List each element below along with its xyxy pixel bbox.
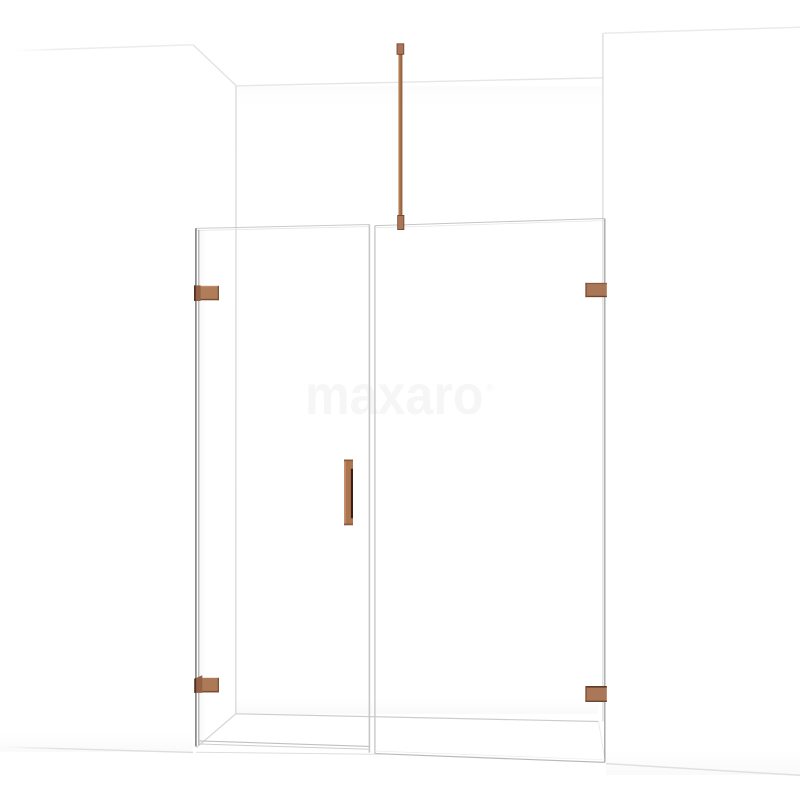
svg-text:®: ® xyxy=(486,383,494,394)
svg-text:maxaro: maxaro xyxy=(305,364,484,426)
